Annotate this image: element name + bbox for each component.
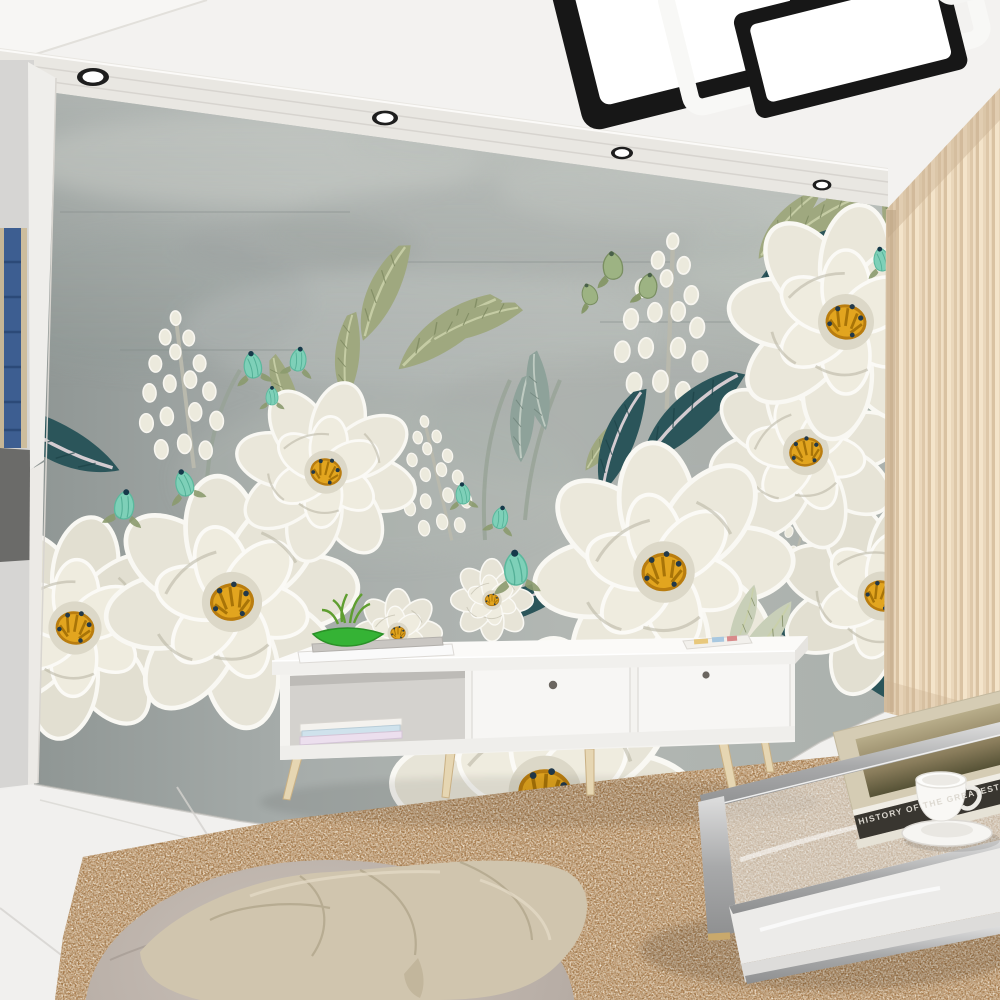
tv-stand-drawer-1 <box>472 662 630 741</box>
living-room-photo: HISTORY OF THE GREATEST PLACES RICHARD H… <box>0 0 1000 1000</box>
hallway-dark-block <box>0 448 30 562</box>
spotlight-3 <box>611 147 633 159</box>
drawer-knob-1 <box>549 681 557 689</box>
spotlight-2 <box>372 111 398 126</box>
spotlight-4 <box>813 180 832 191</box>
drawer-knob-2 <box>702 671 709 678</box>
spotlight-1 <box>77 68 109 86</box>
